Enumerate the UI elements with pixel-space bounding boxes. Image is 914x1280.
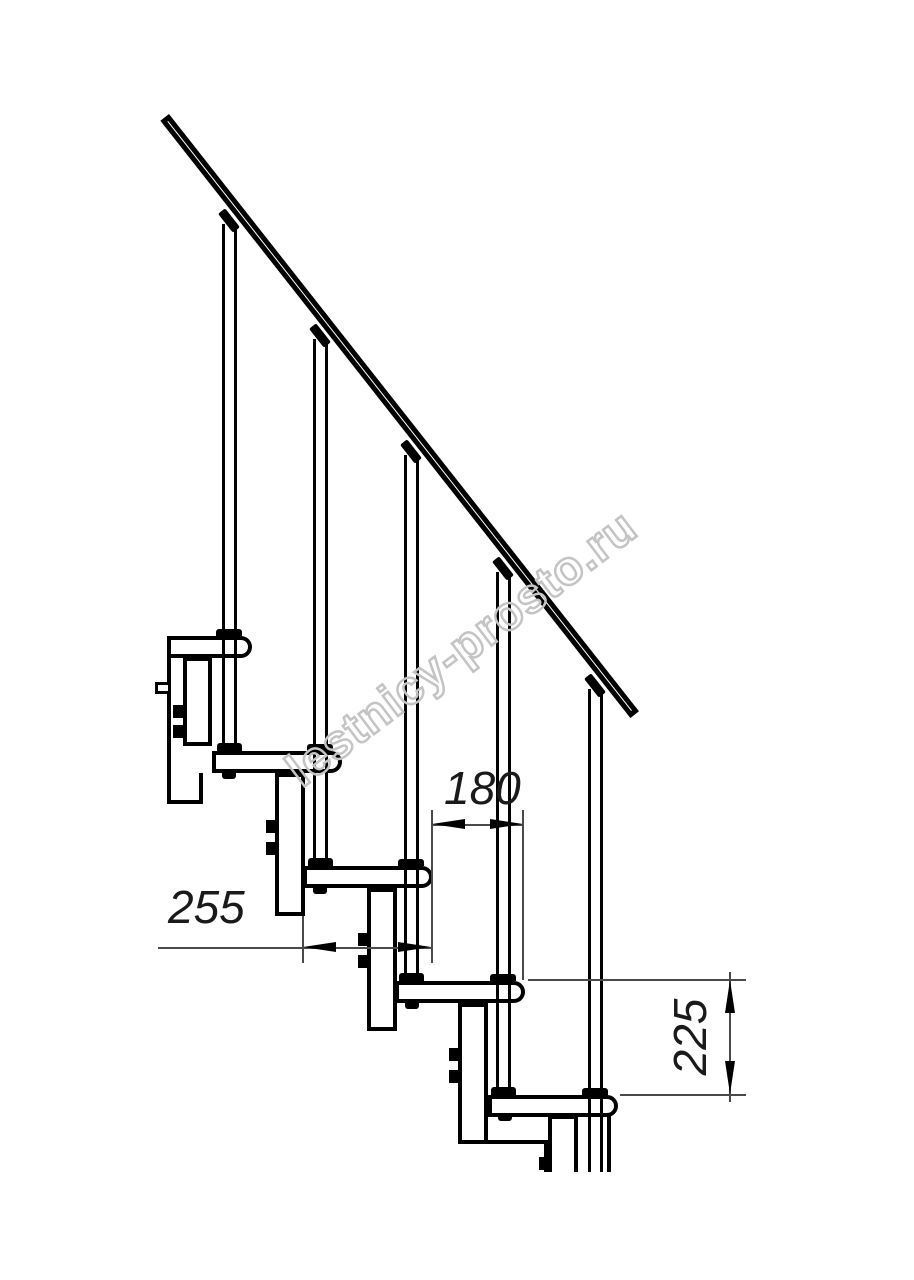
column-4-bolt-upper: [449, 1048, 460, 1061]
upper-module-inner-edge: [199, 773, 203, 804]
step-1: [168, 636, 252, 658]
dimension-180-arrow-right: [490, 819, 523, 829]
dimension-180-extension-right: [522, 810, 524, 980]
column-1-bolt-lower: [173, 725, 184, 738]
dimension-225-extension-bottom: [620, 1094, 746, 1096]
column-under-step-4: [458, 1003, 488, 1144]
dimension-255-extension-left: [302, 916, 304, 963]
column-2-bolt-upper: [266, 820, 277, 833]
baluster-3-collar: [398, 859, 424, 866]
dimension-180-label: 180: [444, 765, 521, 811]
dimension-225-arrow-up: [725, 980, 735, 1013]
dimension-255-arrow-right: [398, 942, 431, 952]
column-under-step-1: [183, 657, 212, 746]
dimension-225-arrow-down: [725, 1061, 735, 1094]
column-under-step-5: [548, 1115, 578, 1172]
bottom-module-back-edge: [607, 1115, 611, 1172]
step-4: [395, 981, 525, 1003]
baluster-1: [222, 224, 237, 744]
column-2-bolt-lower: [266, 842, 277, 855]
baluster-5-collar: [582, 1088, 608, 1095]
wall-mount-tab: [155, 682, 171, 694]
dimension-225-label: 225: [667, 987, 713, 1087]
upper-module-left-edge: [167, 636, 171, 804]
column-under-step-3: [367, 888, 397, 1031]
column-3-bolt-lower: [358, 955, 369, 968]
dimension-255-label: 255: [168, 884, 245, 930]
step-3-underside-bolt: [313, 886, 327, 894]
bottom-bracket-horizontal: [486, 1140, 548, 1144]
step-2-underside-bolt: [222, 771, 236, 779]
dimension-255-extension-right: [431, 810, 433, 963]
upper-module-bottom-edge: [167, 800, 203, 804]
column-1-bolt-upper: [173, 705, 184, 718]
step-3: [303, 866, 433, 888]
column-4-bolt-lower: [449, 1070, 460, 1083]
step-4-underside-bolt: [405, 1001, 419, 1009]
step-5-underside-bolt: [498, 1113, 512, 1121]
dimension-225-extension-top: [528, 979, 746, 981]
dimension-255-line: [158, 947, 433, 949]
column-3-bolt-upper: [358, 933, 369, 946]
baluster-4-collar: [490, 974, 516, 981]
baluster-1-collar: [216, 629, 242, 636]
baluster-2-foot: [308, 858, 333, 866]
column-5-bolt-upper: [539, 1157, 550, 1170]
dimension-255-arrow-left: [303, 942, 336, 952]
baluster-4-foot: [491, 1087, 516, 1095]
baluster-1-foot: [217, 743, 242, 751]
baluster-3-foot: [399, 973, 424, 981]
dimension-180-arrow-left: [432, 819, 465, 829]
staircase-drawing-canvas: 255 180 225 lestnicy-prosto.ru: [0, 0, 914, 1280]
